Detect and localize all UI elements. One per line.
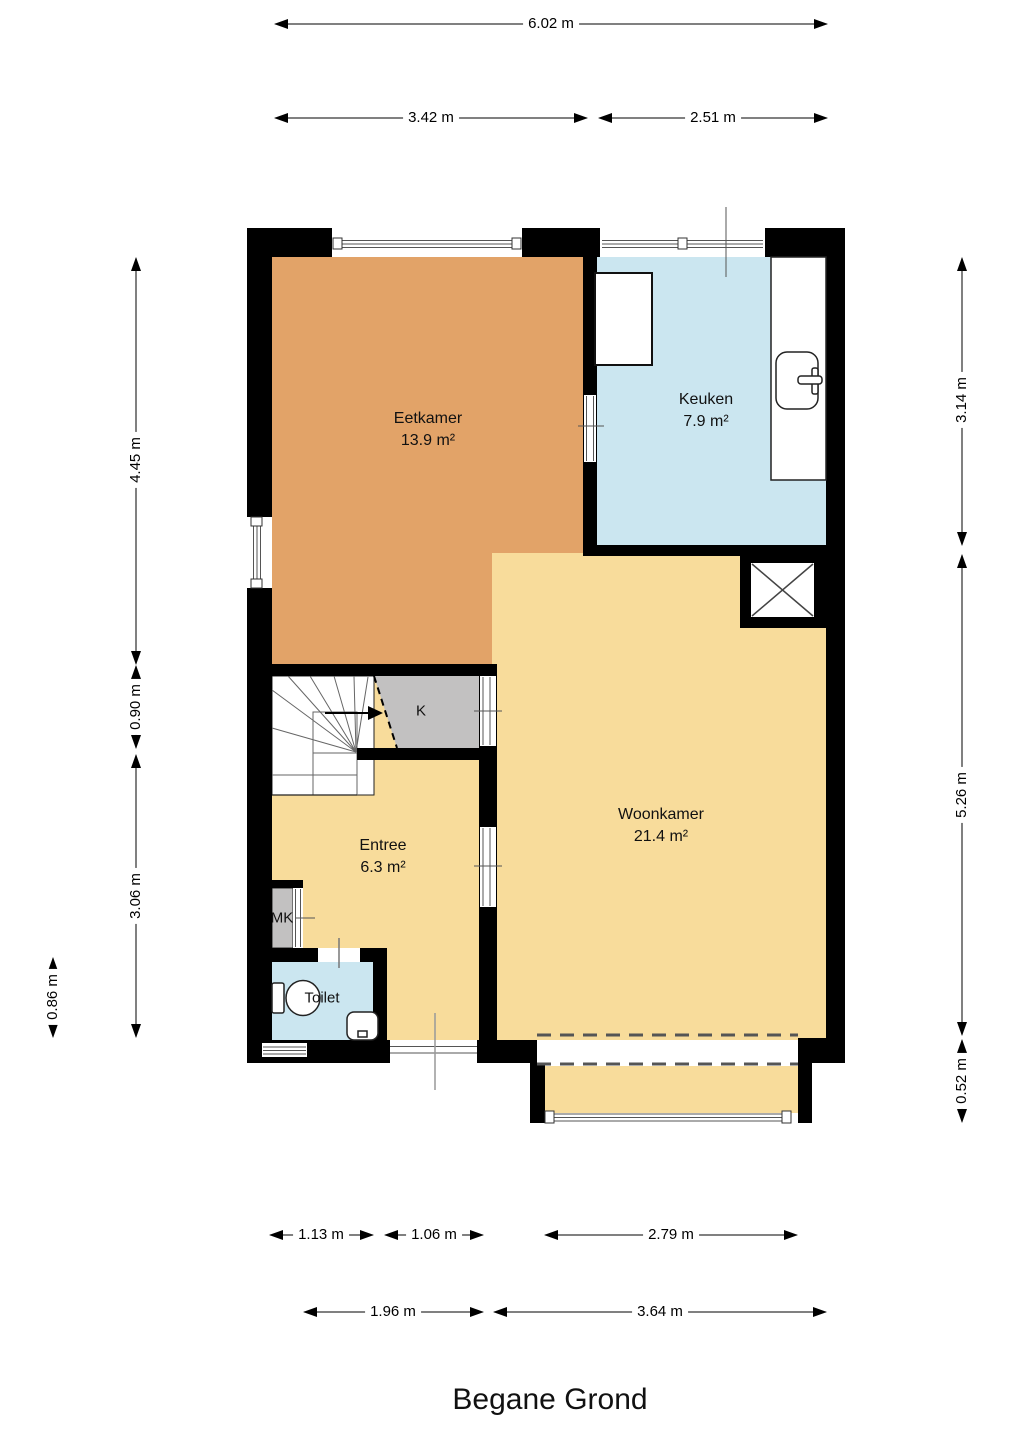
window-toilet [262, 1043, 307, 1057]
keuken-label: Keuken 7.9 m² [679, 389, 733, 433]
dim-bottom-right-total: 3.64 m [632, 1303, 688, 1321]
window-left-eetkamer [247, 517, 272, 588]
dim-top-total: 6.02 m [523, 15, 579, 33]
eetkamer-area: 13.9 m² [394, 430, 462, 452]
dim-left-upper: 4.45 m [127, 432, 145, 488]
eetkamer-floor [272, 257, 583, 553]
window-top-eetkamer [332, 228, 522, 257]
entree-name: Entree [359, 835, 406, 857]
kitchen-appliance [595, 273, 652, 365]
dim-bottom-left-total: 1.96 m [365, 1303, 421, 1321]
floor-plan-page: 6.02 m 3.42 m 2.51 m 3.14 m 5.26 m 0.52 … [0, 0, 1018, 1440]
dim-bottom-bay: 2.79 m [643, 1226, 699, 1244]
dim-right-middle: 5.26 m [953, 767, 971, 823]
entree-area: 6.3 m² [359, 857, 406, 879]
bay-floor [537, 1066, 798, 1113]
keuken-name: Keuken [679, 389, 733, 411]
eetkamer-floor-lower [272, 553, 492, 665]
toilet-label: Toilet [304, 990, 339, 1007]
eetkamer-label: Eetkamer 13.9 m² [394, 408, 462, 452]
dim-left-lower: 3.06 m [127, 868, 145, 924]
woonkamer-label: Woonkamer 21.4 m² [618, 804, 704, 848]
kitchen-sink-icon [776, 352, 822, 409]
kast-label: K [416, 703, 426, 720]
page-title: Begane Grond [452, 1383, 647, 1417]
window-top-keuken [600, 228, 765, 257]
keuken-area: 7.9 m² [679, 411, 733, 433]
dim-left-toilet: 0.86 m [44, 969, 62, 1025]
shaft-icon [750, 562, 815, 618]
toilet-sink-icon [347, 1012, 378, 1040]
dim-bottom-toilet: 1.13 m [293, 1226, 349, 1244]
woonkamer-area: 21.4 m² [618, 826, 704, 848]
dim-top-right: 2.51 m [685, 109, 741, 127]
dim-top-left: 3.42 m [403, 109, 459, 127]
entree-label: Entree 6.3 m² [359, 835, 406, 879]
woonkamer-name: Woonkamer [618, 804, 704, 826]
dim-right-upper: 3.14 m [953, 372, 971, 428]
dim-right-lower: 0.52 m [953, 1053, 971, 1109]
meterkast-label: MK [271, 910, 294, 927]
staircase [272, 676, 374, 795]
dim-bottom-entree: 1.06 m [406, 1226, 462, 1244]
dim-left-stairs: 0.90 m [127, 679, 145, 735]
floor-plan-drawing [0, 0, 1018, 1440]
eetkamer-name: Eetkamer [394, 408, 462, 430]
